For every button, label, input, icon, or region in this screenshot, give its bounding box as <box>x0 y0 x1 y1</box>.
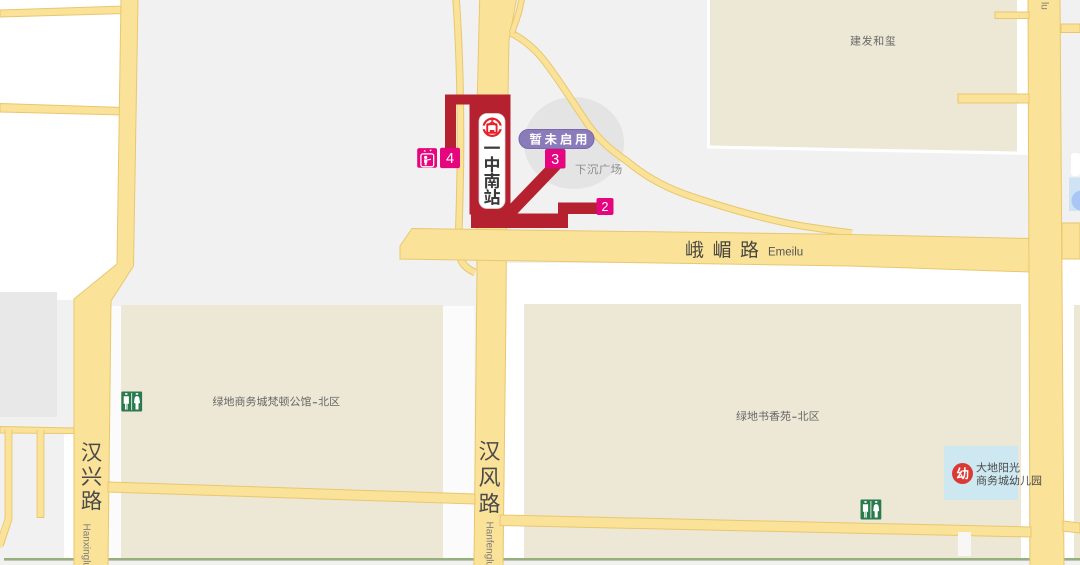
svg-text:Hanxinglu: Hanxinglu <box>81 524 92 565</box>
svg-text:4: 4 <box>446 151 454 167</box>
svg-text:2: 2 <box>602 200 609 214</box>
svg-text:3: 3 <box>551 152 559 168</box>
svg-text:lu: lu <box>1039 2 1050 10</box>
svg-text:Hanfenglu: Hanfenglu <box>484 522 495 565</box>
svg-text:Emeilu: Emeilu <box>768 247 803 259</box>
